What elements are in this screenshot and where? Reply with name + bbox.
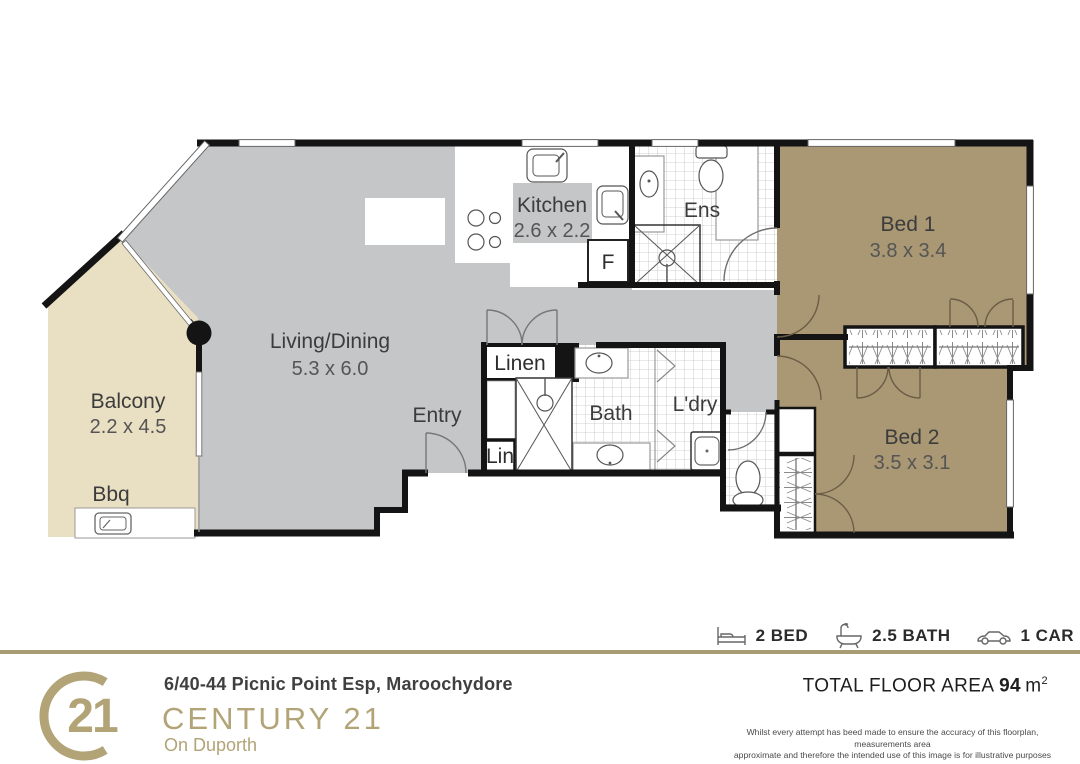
bed2-closets: [776, 408, 815, 533]
balcony-column: [187, 321, 212, 346]
total-area-value: 94: [999, 675, 1021, 696]
bath-icon: [834, 622, 864, 650]
feature-cars: 1 CAR: [976, 624, 1074, 648]
bed-icon: [716, 623, 748, 649]
bbq-bench: [75, 508, 195, 538]
total-area-unit: m: [1025, 675, 1041, 696]
feature-beds-label: 2 BED: [756, 626, 809, 646]
bed1-wardrobe: [845, 327, 1023, 367]
logo-number: 21: [67, 690, 118, 743]
bath-label: Bath: [589, 402, 632, 425]
century21-logo: 21: [34, 664, 149, 764]
feature-baths: 2.5 BATH: [834, 622, 950, 650]
disclaimer-line: Whilst every attempt has beed made to en…: [730, 727, 1055, 750]
kitchen-label: Kitchen: [517, 194, 587, 217]
ens-label: Ens: [684, 199, 720, 222]
brand-name: CENTURY 21: [162, 701, 384, 737]
total-floor-area: TOTAL FLOOR AREA 94 m2: [803, 675, 1048, 697]
bed1-dims: 3.8 x 3.4: [870, 240, 947, 262]
feature-summary: 2 BED 2.5 BATH 1 CAR: [716, 622, 1074, 650]
disclaimer: Whilst every attempt has beed made to en…: [730, 727, 1055, 764]
lin-label: Lin: [486, 445, 514, 468]
feature-cars-label: 1 CAR: [1020, 626, 1074, 646]
car-icon: [976, 624, 1012, 648]
total-area-label: TOTAL FLOOR AREA: [803, 675, 1000, 696]
bed2-label: Bed 2: [885, 426, 940, 449]
bed2-dims: 3.5 x 3.1: [874, 452, 951, 474]
feature-baths-label: 2.5 BATH: [872, 626, 950, 646]
entry-label: Entry: [412, 404, 462, 427]
fridge-label: F: [602, 251, 615, 274]
bed1-label: Bed 1: [881, 213, 936, 236]
kitchen-dims: 2.6 x 2.2: [514, 220, 591, 242]
balcony-dims: 2.2 x 4.5: [90, 416, 167, 438]
floorplan-sheet: Living/Dining 5.3 x 6.0 Kitchen 2.6 x 2.…: [0, 0, 1080, 764]
total-area-sup: 2: [1041, 675, 1048, 687]
balcony-label: Balcony: [91, 390, 166, 413]
footer-divider: [0, 650, 1080, 654]
living-label: Living/Dining: [270, 330, 390, 353]
bbq-label: Bbq: [92, 483, 129, 506]
living-dims: 5.3 x 6.0: [292, 358, 369, 380]
feature-beds: 2 BED: [716, 623, 809, 649]
kitchen-island-bench: [365, 198, 445, 245]
disclaimer-line: approximate and therefore the intended u…: [730, 750, 1055, 764]
property-address: 6/40-44 Picnic Point Esp, Maroochydore: [164, 674, 513, 695]
linen-label: Linen: [494, 352, 545, 375]
laundry-label: L'dry: [673, 393, 718, 416]
office-name: On Duporth: [164, 735, 257, 756]
